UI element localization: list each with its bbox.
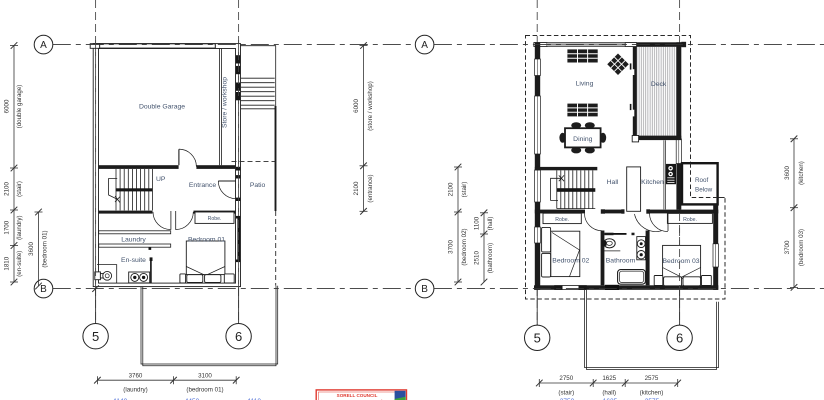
svg-text:Below: Below	[695, 186, 713, 193]
svg-text:Hall: Hall	[607, 179, 619, 186]
svg-text:Patio: Patio	[250, 182, 266, 189]
svg-text:2510: 2510	[474, 251, 481, 265]
svg-text:(stair): (stair)	[16, 181, 23, 197]
svg-text:(double garage): (double garage)	[16, 85, 23, 129]
svg-text:1100: 1100	[474, 216, 481, 230]
svg-text:(entrance): (entrance)	[367, 174, 374, 202]
svg-text:6000: 6000	[4, 99, 11, 113]
svg-text:(bedroom 01): (bedroom 01)	[42, 230, 49, 267]
svg-text:6: 6	[676, 330, 683, 345]
svg-text:2100: 2100	[448, 182, 455, 196]
svg-text:1700: 1700	[4, 220, 11, 234]
svg-text:Dining: Dining	[573, 136, 592, 143]
svg-text:1625: 1625	[602, 375, 616, 382]
svg-text:2100: 2100	[4, 182, 11, 196]
svg-text:Living: Living	[576, 80, 594, 87]
svg-text:(laundry): (laundry)	[123, 387, 147, 394]
svg-text:(bathroom): (bathroom)	[487, 243, 494, 273]
svg-text:3700: 3700	[784, 240, 791, 254]
svg-text:3760: 3760	[129, 372, 143, 379]
svg-text:2750: 2750	[559, 375, 573, 382]
svg-text:3700: 3700	[448, 240, 455, 254]
svg-text:3100: 3100	[198, 372, 212, 379]
svg-text:Robe.: Robe.	[208, 216, 222, 222]
svg-text:A: A	[40, 40, 47, 51]
svg-text:Double Garage: Double Garage	[139, 103, 185, 110]
svg-text:(kitchen): (kitchen)	[640, 389, 664, 396]
svg-text:3600: 3600	[784, 166, 791, 180]
svg-text:2100: 2100	[353, 181, 360, 195]
svg-text:1810: 1810	[4, 256, 11, 270]
svg-text:Laundry: Laundry	[121, 236, 146, 243]
svg-text:Deck: Deck	[651, 81, 667, 88]
svg-text:(bedroom 03): (bedroom 03)	[798, 229, 805, 266]
svg-text:SORELL COUNCIL: SORELL COUNCIL	[337, 393, 378, 398]
svg-text:Store / workshop: Store / workshop	[222, 77, 229, 128]
svg-text:Robe.: Robe.	[555, 217, 569, 223]
svg-text:B: B	[40, 284, 47, 295]
svg-text:(store / workshop): (store / workshop)	[367, 81, 374, 131]
svg-text:Robe.: Robe.	[683, 217, 697, 223]
svg-text:Roof: Roof	[695, 177, 709, 184]
svg-text:5: 5	[92, 329, 99, 344]
svg-text:B: B	[421, 284, 428, 295]
svg-text:(hall): (hall)	[487, 217, 494, 231]
svg-text:6000: 6000	[353, 99, 360, 113]
svg-text:Bedroom 02: Bedroom 02	[552, 257, 589, 264]
svg-text:3600: 3600	[28, 242, 35, 256]
svg-text:Bedroom 03: Bedroom 03	[662, 258, 699, 265]
svg-text:(bedroom 01): (bedroom 01)	[186, 387, 223, 394]
svg-text:(hall): (hall)	[602, 389, 616, 396]
svg-text:En-suite: En-suite	[121, 257, 146, 264]
svg-text:Kitchen: Kitchen	[641, 179, 664, 186]
svg-text:A: A	[421, 40, 428, 51]
svg-text:(stair): (stair)	[461, 182, 468, 198]
svg-text:UP: UP	[156, 176, 166, 183]
svg-text:(bedroom 02): (bedroom 02)	[461, 228, 468, 265]
svg-text:2575: 2575	[645, 375, 659, 382]
svg-text:(stair): (stair)	[558, 389, 574, 396]
svg-text:(kitchen): (kitchen)	[798, 161, 805, 185]
svg-text:Entrance: Entrance	[189, 182, 216, 189]
svg-text:Bedroom 01: Bedroom 01	[188, 237, 225, 244]
svg-text:5: 5	[534, 330, 541, 345]
svg-text:(laundry): (laundry)	[16, 215, 23, 239]
svg-text:Bathroom: Bathroom	[606, 257, 636, 264]
svg-text:(en-suite): (en-suite)	[16, 251, 23, 277]
svg-text:6: 6	[235, 329, 242, 344]
